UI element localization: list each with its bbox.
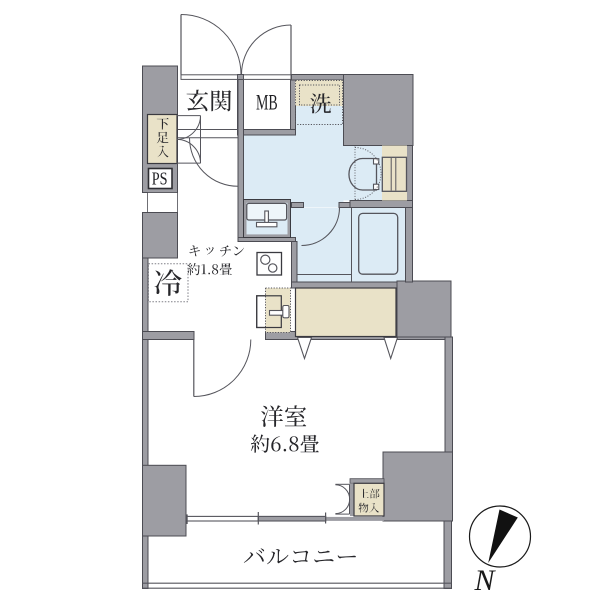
svg-text:N: N [473, 565, 496, 597]
svg-text:MB: MB [256, 90, 278, 115]
svg-text:PS: PS [152, 169, 168, 189]
